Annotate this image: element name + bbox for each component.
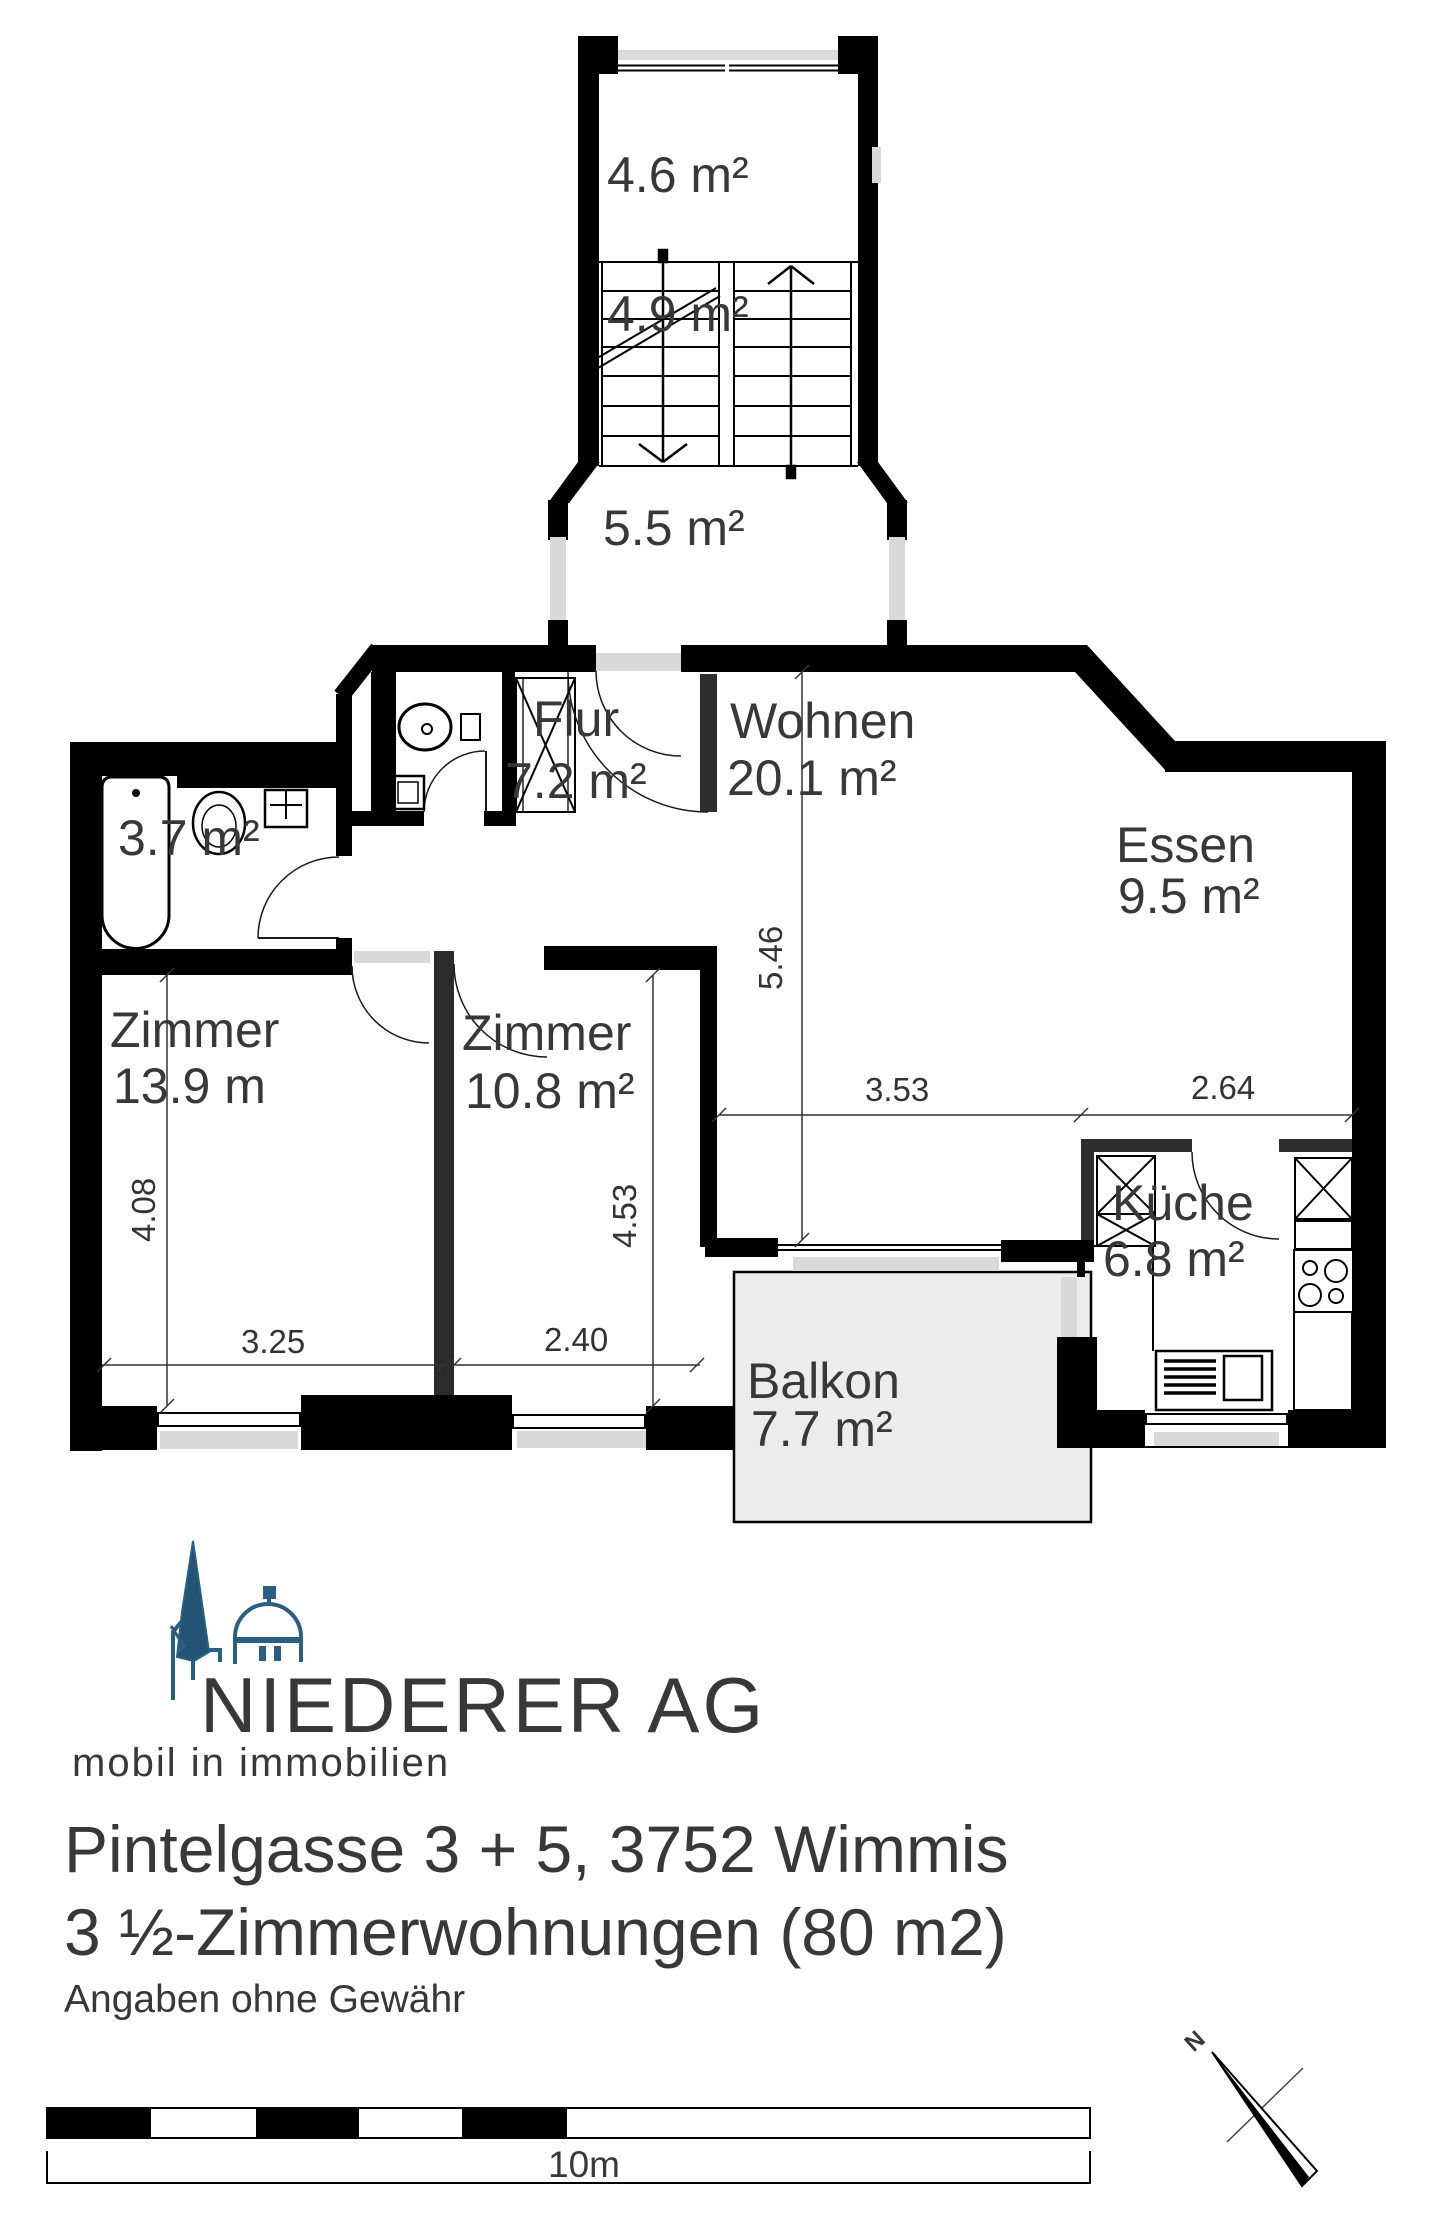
svg-text:Wohnen: Wohnen bbox=[730, 693, 915, 749]
svg-text:Küche: Küche bbox=[1112, 1175, 1254, 1231]
svg-text:NIEDERER AG: NIEDERER AG bbox=[200, 1661, 766, 1749]
svg-text:6.8 m²: 6.8 m² bbox=[1103, 1231, 1245, 1287]
svg-text:4.6 m²: 4.6 m² bbox=[607, 147, 749, 203]
svg-text:20.1 m²: 20.1 m² bbox=[727, 750, 897, 806]
svg-text:13.9 m: 13.9 m bbox=[113, 1058, 266, 1114]
svg-text:3 ½-Zimmerwohnungen (80 m2): 3 ½-Zimmerwohnungen (80 m2) bbox=[64, 1895, 1007, 1969]
svg-text:4.9 m²: 4.9 m² bbox=[607, 286, 749, 342]
svg-text:mobil in immobilien: mobil in immobilien bbox=[72, 1741, 450, 1785]
svg-text:5.46: 5.46 bbox=[752, 926, 789, 990]
svg-text:Zimmer: Zimmer bbox=[462, 1005, 631, 1061]
svg-text:Pintelgasse 3 + 5, 3752 Wimmis: Pintelgasse 3 + 5, 3752 Wimmis bbox=[64, 1812, 1009, 1886]
svg-text:10.8 m²: 10.8 m² bbox=[465, 1063, 635, 1119]
svg-text:7.7 m²: 7.7 m² bbox=[751, 1401, 893, 1457]
svg-text:5.5 m²: 5.5 m² bbox=[603, 500, 745, 556]
svg-text:4.53: 4.53 bbox=[606, 1184, 643, 1248]
svg-text:N: N bbox=[1180, 2026, 1211, 2058]
svg-text:4.08: 4.08 bbox=[125, 1178, 162, 1242]
svg-text:Angaben ohne Gewähr: Angaben ohne Gewähr bbox=[64, 1978, 465, 2021]
svg-text:Flur: Flur bbox=[533, 691, 619, 747]
svg-text:9.5 m²: 9.5 m² bbox=[1118, 868, 1260, 924]
svg-text:Zimmer: Zimmer bbox=[110, 1002, 279, 1058]
svg-text:3.53: 3.53 bbox=[865, 1071, 929, 1108]
svg-text:2.64: 2.64 bbox=[1191, 1069, 1255, 1106]
svg-text:7.2 m²: 7.2 m² bbox=[505, 753, 647, 809]
svg-text:3.25: 3.25 bbox=[241, 1323, 305, 1360]
svg-text:3.7 m²: 3.7 m² bbox=[118, 810, 260, 866]
svg-text:Essen: Essen bbox=[1116, 817, 1255, 873]
svg-text:10m: 10m bbox=[548, 2144, 620, 2185]
svg-text:2.40: 2.40 bbox=[544, 1321, 608, 1358]
